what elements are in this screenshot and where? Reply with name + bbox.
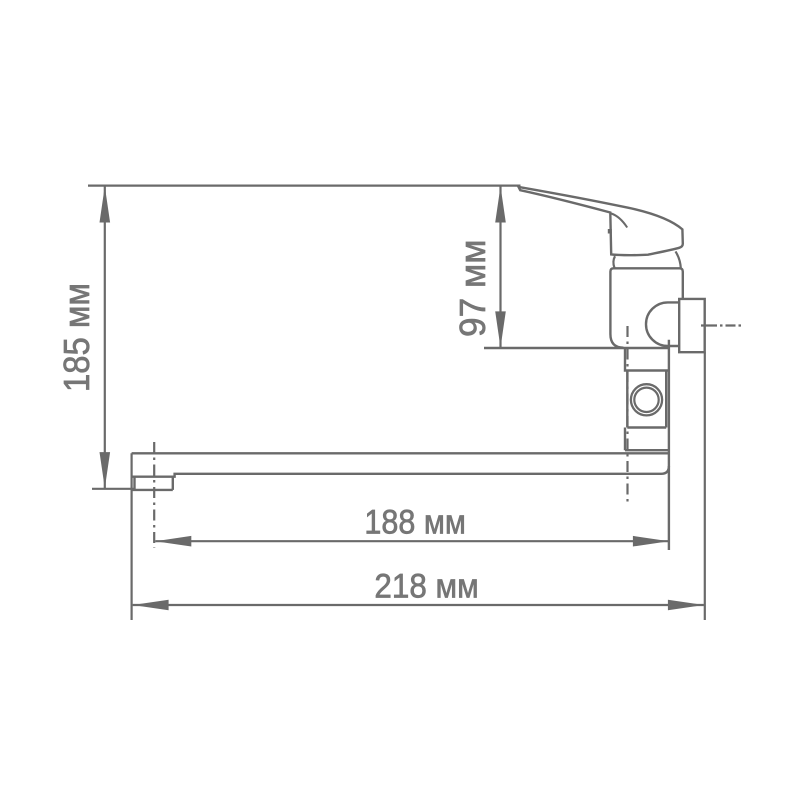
svg-text:218 мм: 218 мм <box>374 568 478 606</box>
svg-text:97 мм: 97 мм <box>452 240 493 338</box>
svg-text:188 мм: 188 мм <box>364 503 466 541</box>
svg-text:185 мм: 185 мм <box>56 283 97 392</box>
